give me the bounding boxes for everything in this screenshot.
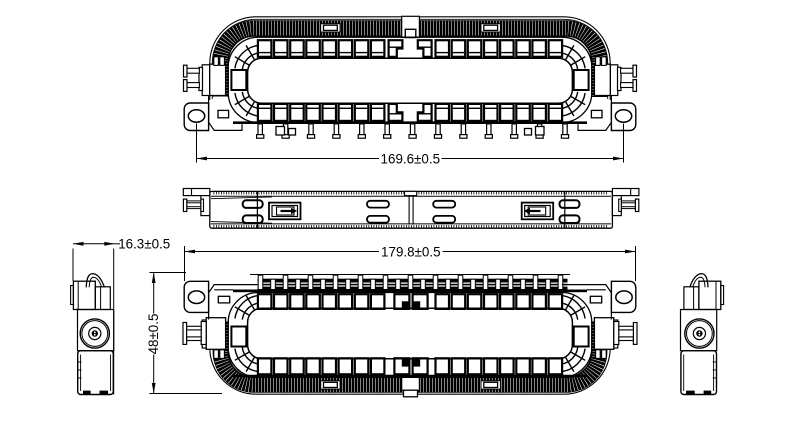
- svg-text:48±0.5: 48±0.5: [146, 314, 161, 355]
- svg-text:16.3±0.5: 16.3±0.5: [118, 236, 170, 251]
- svg-text:179.8±0.5: 179.8±0.5: [381, 244, 440, 259]
- svg-text:169.6±0.5: 169.6±0.5: [381, 151, 440, 166]
